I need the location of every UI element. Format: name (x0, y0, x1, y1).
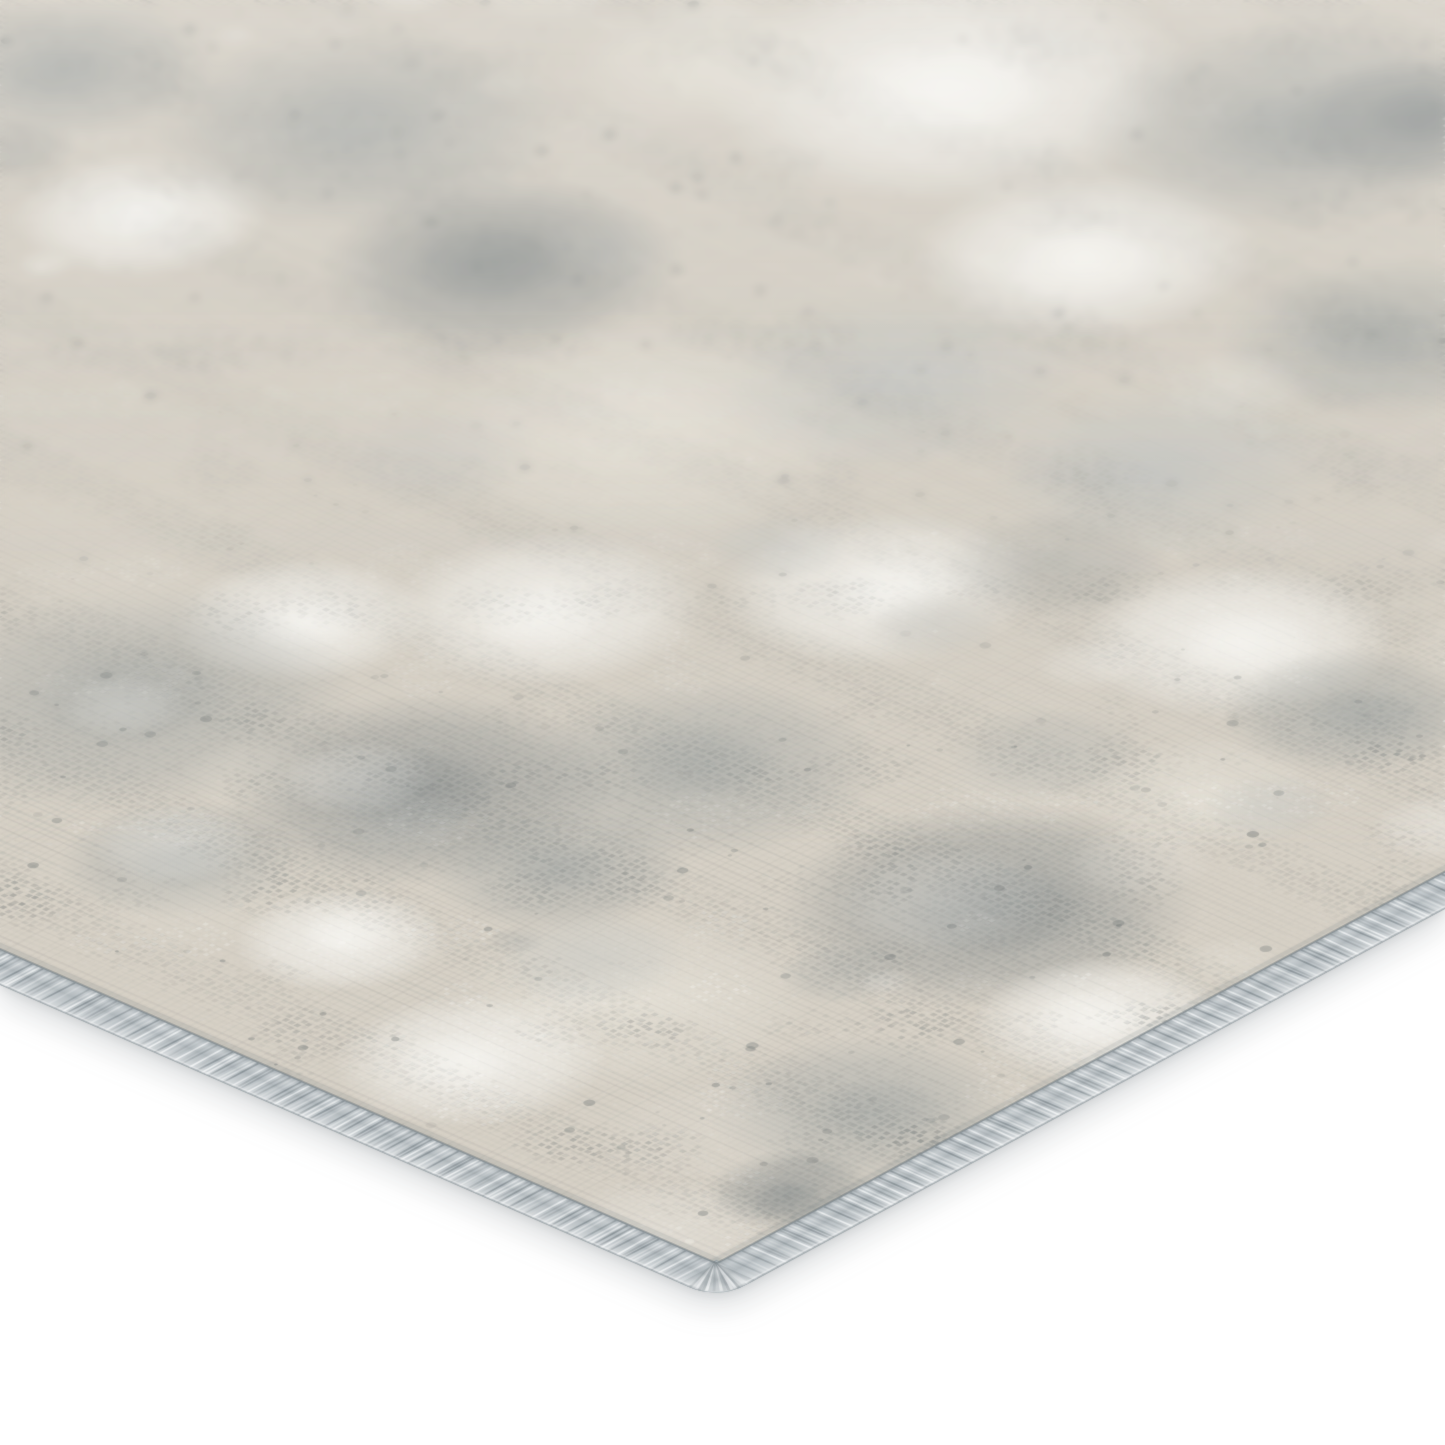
rug-product-photo: Corner close-up product photo of an abst… (0, 0, 1445, 1445)
rug-photo-canvas (0, 0, 1445, 1445)
